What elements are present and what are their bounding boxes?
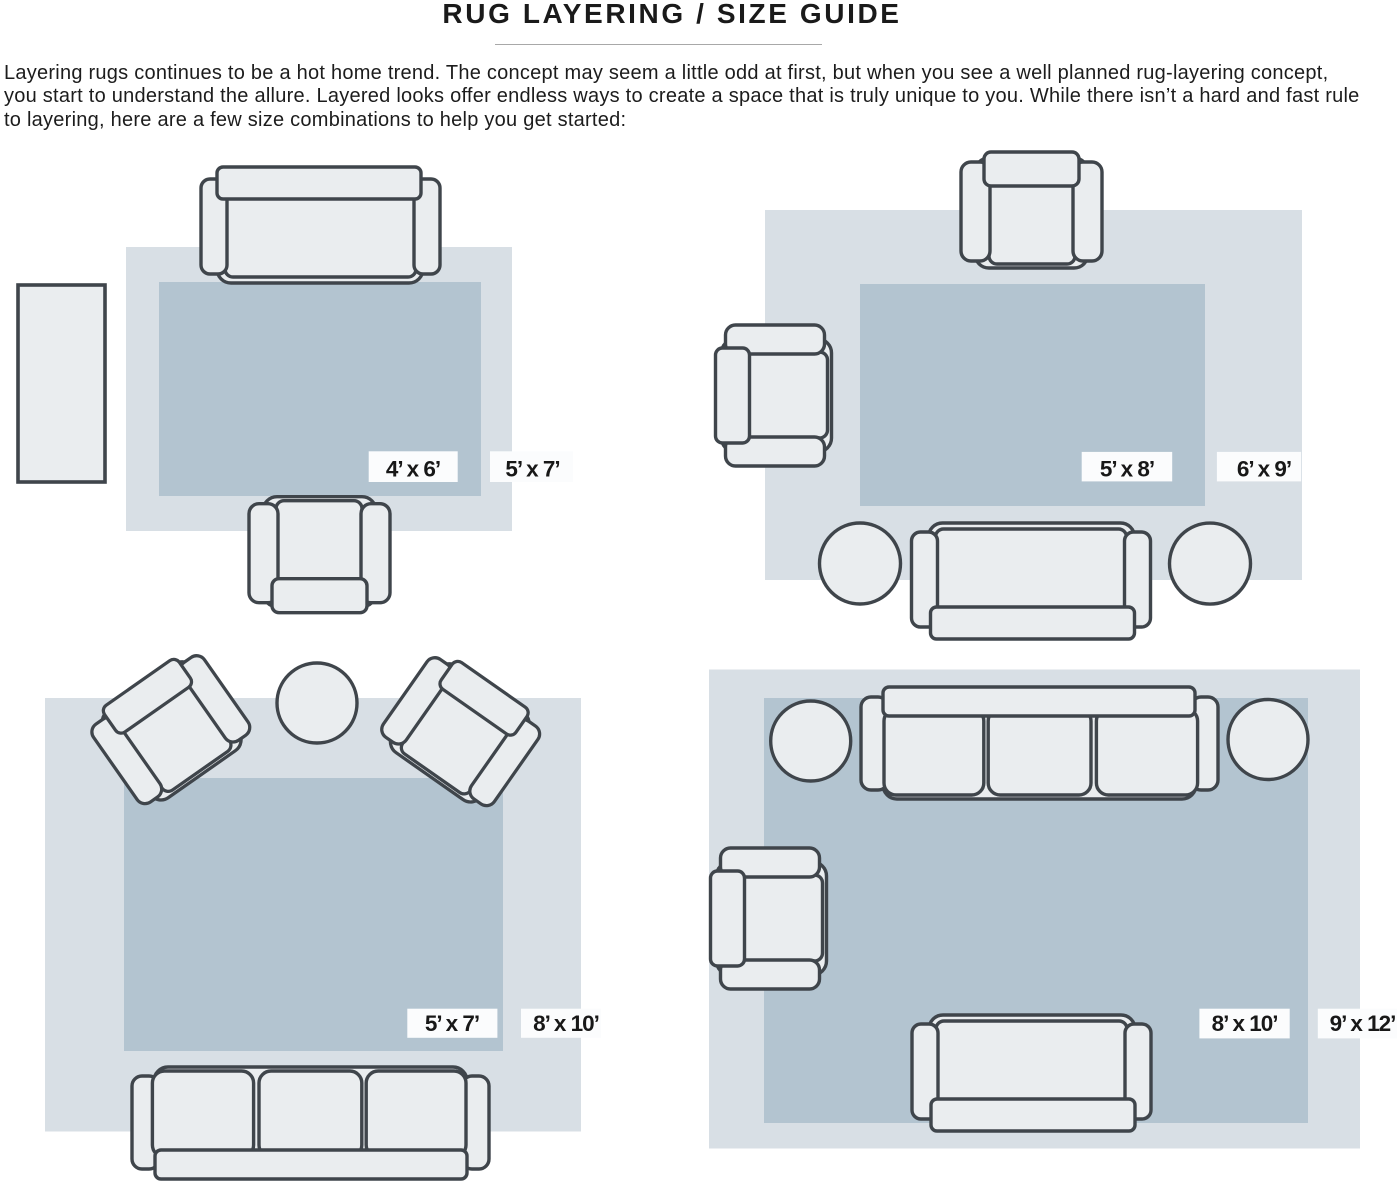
svg-text:4’ x 6’: 4’ x 6’ xyxy=(386,457,440,482)
svg-text:8’ x 10’: 8’ x 10’ xyxy=(1212,1011,1278,1036)
svg-text:6’ x 9’: 6’ x 9’ xyxy=(1237,457,1291,482)
svg-text:5’ x 8’: 5’ x 8’ xyxy=(1100,457,1154,482)
svg-text:5’ x 7’: 5’ x 7’ xyxy=(425,1011,479,1036)
svg-text:9’ x 12’: 9’ x 12’ xyxy=(1330,1011,1396,1036)
svg-text:5’ x 7’: 5’ x 7’ xyxy=(505,457,559,482)
svg-text:8’ x 10’: 8’ x 10’ xyxy=(533,1011,599,1036)
